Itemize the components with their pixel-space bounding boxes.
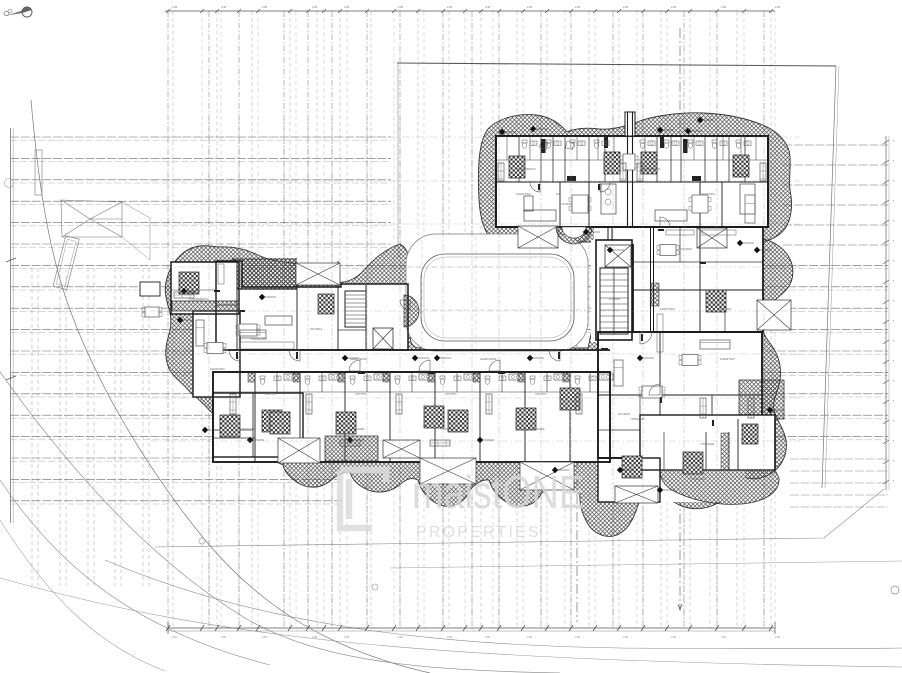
- svg-text:ΚΑΘΙΣΤΙΚΟ: ΚΑΘΙΣΤΙΚΟ: [700, 192, 716, 196]
- svg-text:2.98: 2.98: [312, 5, 318, 9]
- svg-text:ΥΠΝΟΔΩΜ.: ΥΠΝΟΔΩΜ.: [240, 427, 255, 431]
- svg-text:4.50: 4.50: [485, 635, 491, 639]
- svg-text:ΤΡΑΠΕΖ.: ΤΡΑΠΕΖ.: [720, 307, 732, 311]
- svg-text:ΚΑΘΙΣΤΙΚΟ: ΚΑΘΙΣΤΙΚΟ: [516, 192, 532, 196]
- svg-text:2.98: 2.98: [172, 5, 178, 9]
- svg-text:ΚΟΥΖΙΝΑ: ΚΟΥΖΙΝΑ: [680, 247, 692, 251]
- svg-text:ΥΠΝΟΔΩΜ.: ΥΠΝΟΔΩΜ.: [530, 427, 545, 431]
- svg-text:ΥΠΝΟΔΩΜ.: ΥΠΝΟΔΩΜ.: [440, 427, 455, 431]
- svg-text:4.50: 4.50: [221, 635, 227, 639]
- svg-text:2.98: 2.98: [623, 5, 629, 9]
- svg-text:ΥΠΝΟΔΩΜ.: ΥΠΝΟΔΩΜ.: [735, 172, 750, 176]
- svg-text:ΥΠΝΟΔΩΜΑΤΙΟ: ΥΠΝΟΔΩΜΑΤΙΟ: [515, 167, 536, 171]
- svg-text:4.50: 4.50: [344, 635, 350, 639]
- svg-text:4.50: 4.50: [312, 635, 318, 639]
- svg-text:ΚΟΥΖΙΝΑ: ΚΟΥΖΙΝΑ: [618, 412, 630, 416]
- svg-text:ΥΠΝΟΔΩΜ.: ΥΠΝΟΔΩΜ.: [350, 427, 365, 431]
- svg-text:4.50: 4.50: [623, 635, 629, 639]
- svg-text:ΛΟΥΤΡΟ: ΛΟΥΤΡΟ: [265, 392, 277, 396]
- svg-text:2.98: 2.98: [671, 5, 677, 9]
- svg-text:ΚΑΘΙΣΤΙΚΟ: ΚΑΘΙΣΤΙΚΟ: [210, 367, 226, 371]
- svg-text:2.98: 2.98: [575, 5, 581, 9]
- svg-text:4.50: 4.50: [262, 635, 268, 639]
- svg-text:4.50: 4.50: [775, 635, 781, 639]
- svg-text:ΛΟΥΤΡΟ: ΛΟΥΤΡΟ: [355, 392, 367, 396]
- svg-text:ΥΠΝΟΔΩΜ.: ΥΠΝΟΔΩΜ.: [690, 477, 705, 481]
- svg-text:ΛΟΥΤΡΟ: ΛΟΥΤΡΟ: [445, 392, 457, 396]
- svg-text:ΚΟΥΖΙΝΑ: ΚΟΥΖΙΝΑ: [310, 327, 322, 331]
- svg-text:2.98: 2.98: [485, 5, 491, 9]
- svg-text:ΥΠΝΟΔΩΜΑΤΙΟ: ΥΠΝΟΔΩΜΑΤΙΟ: [188, 297, 209, 301]
- svg-text:4.50: 4.50: [671, 635, 677, 639]
- svg-text:ΔΙΑΔΡΟΜΟΣ: ΔΙΑΔΡΟΜΟΣ: [480, 357, 497, 361]
- svg-text:4.50: 4.50: [721, 635, 727, 639]
- svg-text:4.50: 4.50: [172, 635, 178, 639]
- svg-text:4.50: 4.50: [447, 635, 453, 639]
- svg-text:ΚΑΘΙΣΤΙΚΟ: ΚΑΘΙΣΤΙΚΟ: [660, 307, 676, 311]
- svg-text:WC: WC: [556, 192, 561, 196]
- svg-text:PROPERTIES: PROPERTIES: [416, 524, 541, 541]
- svg-text:2.98: 2.98: [398, 5, 404, 9]
- svg-text:2.98: 2.98: [721, 5, 727, 9]
- svg-text:ΥΠΝΟΔΩΜ.: ΥΠΝΟΔΩΜ.: [700, 442, 715, 446]
- svg-text:maistONE: maistONE: [412, 466, 584, 518]
- svg-text:ΚΟΥΖΙΝΑ: ΚΟΥΖΙΝΑ: [560, 202, 572, 206]
- svg-text:ΚΑΘΙΣΤΙΚΟ: ΚΑΘΙΣΤΙΚΟ: [720, 357, 736, 361]
- svg-text:4.50: 4.50: [575, 635, 581, 639]
- svg-text:ΔΙΑΔΡΟΜΟΣ: ΔΙΑΔΡΟΜΟΣ: [350, 357, 367, 361]
- svg-text:ΛΟΥΤΡΟ: ΛΟΥΤΡΟ: [626, 475, 638, 479]
- svg-text:4.50: 4.50: [527, 635, 533, 639]
- svg-text:2.98: 2.98: [527, 5, 533, 9]
- svg-text:2.98: 2.98: [447, 5, 453, 9]
- svg-text:2.98: 2.98: [775, 5, 781, 9]
- svg-text:2.98: 2.98: [262, 5, 268, 9]
- svg-text:2.98: 2.98: [344, 5, 350, 9]
- svg-text:4.50: 4.50: [398, 635, 404, 639]
- svg-text:ΤΡΑΠΕΖΑΡΙΑ: ΤΡΑΠΕΖΑΡΙΑ: [250, 337, 267, 341]
- svg-text:2.98: 2.98: [221, 5, 227, 9]
- svg-text:ΚΑΘΙΣΤΙΚΟ: ΚΑΘΙΣΤΙΚΟ: [250, 287, 266, 291]
- svg-text:ΚΛΙΜΑΚ.: ΚΛΙΜΑΚ.: [609, 297, 621, 301]
